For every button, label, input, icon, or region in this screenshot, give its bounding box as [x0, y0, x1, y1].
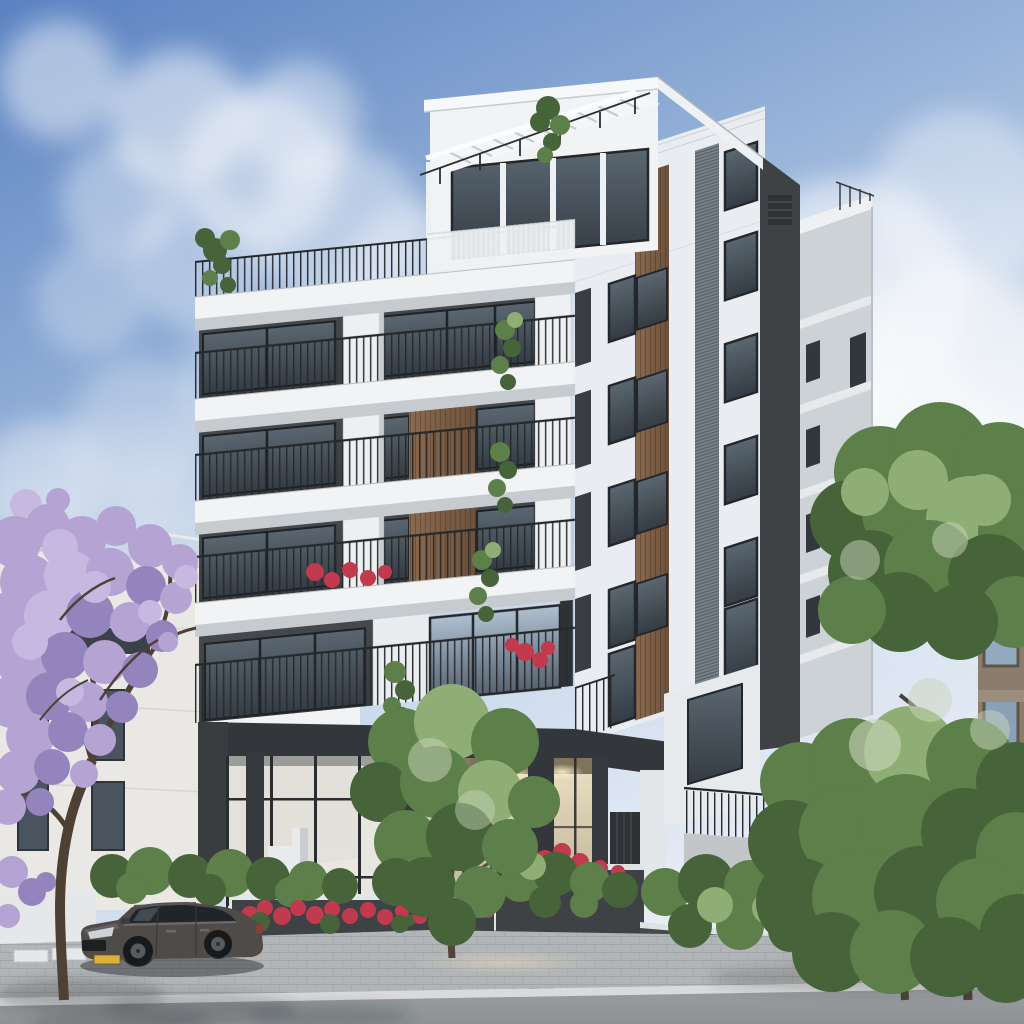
- car-mirror: [121, 918, 130, 924]
- blob: [377, 909, 393, 925]
- blob: [26, 788, 54, 816]
- blob: [34, 749, 70, 785]
- blob: [378, 565, 392, 579]
- blob: [455, 790, 495, 830]
- blob: [56, 678, 84, 706]
- blob: [529, 886, 561, 918]
- blob: [372, 858, 420, 906]
- blob: [478, 606, 494, 622]
- blob: [36, 872, 56, 892]
- blob: [507, 312, 523, 328]
- blob: [70, 760, 98, 788]
- blob: [122, 652, 158, 688]
- blob: [322, 868, 358, 904]
- car-tail-lamp: [256, 924, 263, 933]
- blob: [537, 147, 553, 163]
- blob: [342, 562, 358, 578]
- blob: [0, 20, 120, 140]
- blob: [174, 565, 198, 589]
- blob: [488, 479, 506, 497]
- blob: [342, 908, 358, 924]
- scene-canvas: [0, 0, 1024, 1024]
- blob: [106, 691, 138, 723]
- blob: [220, 230, 240, 250]
- blob: [202, 270, 218, 286]
- blob: [570, 890, 598, 918]
- blob: [391, 915, 409, 933]
- blob: [499, 461, 517, 479]
- blob: [497, 497, 513, 513]
- blob: [841, 468, 889, 516]
- blob: [818, 576, 886, 644]
- license-plate: [94, 955, 120, 964]
- blob: [84, 724, 116, 756]
- blob: [428, 898, 476, 946]
- blob: [922, 584, 998, 660]
- blob: [360, 902, 376, 918]
- blob: [384, 661, 406, 683]
- blob: [138, 600, 162, 624]
- blob: [83, 640, 127, 684]
- blob: [469, 587, 487, 605]
- blob: [360, 570, 376, 586]
- blob: [541, 641, 555, 655]
- blob: [35, 245, 145, 355]
- blob: [888, 450, 948, 510]
- blob: [194, 874, 226, 906]
- blob: [408, 738, 452, 782]
- blob: [485, 542, 501, 558]
- entrance-light-spill: [410, 949, 600, 975]
- blob: [500, 374, 516, 390]
- blob: [550, 115, 570, 135]
- blob: [320, 914, 340, 934]
- car-grille: [82, 940, 106, 951]
- blob: [849, 719, 901, 771]
- blob: [306, 563, 324, 581]
- curb-stone: [14, 950, 48, 962]
- blob: [908, 678, 952, 722]
- blob: [505, 638, 519, 652]
- service-core: [760, 155, 800, 750]
- blob: [503, 339, 521, 357]
- blob: [324, 572, 340, 588]
- blob: [602, 872, 638, 908]
- blob: [195, 228, 215, 248]
- blob: [395, 680, 415, 700]
- blob: [213, 256, 231, 274]
- blob: [273, 907, 291, 925]
- blob: [240, 60, 360, 180]
- blob: [42, 529, 78, 565]
- blob: [116, 872, 148, 904]
- blob: [290, 900, 306, 916]
- blob: [490, 442, 510, 462]
- blob: [481, 569, 499, 587]
- blob: [530, 112, 550, 132]
- blob: [970, 710, 1010, 750]
- architectural-render-image: [0, 0, 1024, 1024]
- blob: [932, 522, 968, 558]
- blob: [840, 540, 880, 580]
- blob: [959, 474, 1011, 526]
- blob: [220, 277, 236, 293]
- blob: [126, 566, 166, 606]
- blob: [48, 712, 88, 752]
- blob: [12, 624, 48, 660]
- blob: [482, 819, 538, 875]
- blob: [697, 887, 733, 923]
- blob: [491, 356, 509, 374]
- blob: [158, 632, 178, 652]
